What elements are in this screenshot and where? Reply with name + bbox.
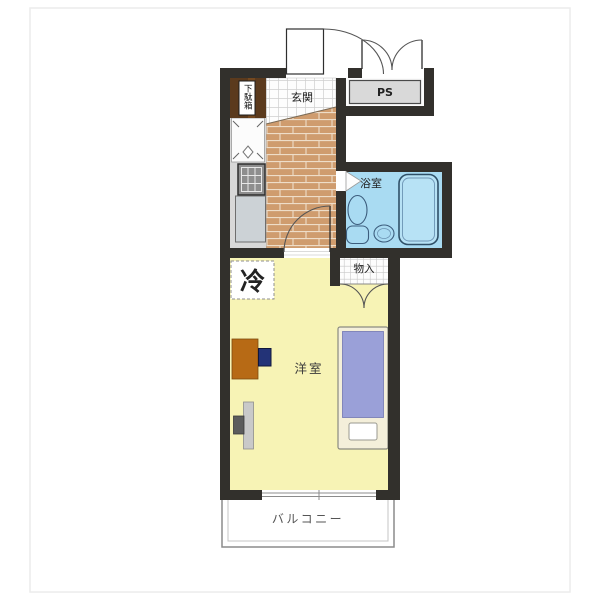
refrigerator-label: 冷 bbox=[240, 267, 265, 296]
pipe-space: PS bbox=[346, 78, 424, 106]
toilet-bowl bbox=[348, 196, 367, 225]
bed bbox=[338, 327, 388, 449]
chair bbox=[259, 349, 272, 367]
entrance-door-arc bbox=[324, 29, 384, 74]
wall-top-middle bbox=[348, 68, 362, 78]
western-room-label: 洋室 bbox=[294, 361, 323, 376]
ps-door-arc-left bbox=[362, 40, 392, 70]
wall-bathroom-top bbox=[336, 162, 452, 172]
shoe-cabinet: 下駄箱 bbox=[230, 78, 266, 118]
wall-ps-right bbox=[424, 68, 434, 116]
toilet-base bbox=[347, 226, 369, 244]
refrigerator-space: 冷 bbox=[231, 261, 274, 299]
bed-mattress bbox=[343, 332, 384, 418]
wall-bottom-left bbox=[220, 490, 262, 500]
bathroom-door-opening bbox=[336, 171, 346, 191]
bathroom: 浴室 bbox=[346, 172, 442, 248]
desk bbox=[232, 339, 258, 379]
bathroom-label: 浴室 bbox=[360, 176, 382, 190]
ps-label: PS bbox=[377, 86, 393, 99]
bathtub bbox=[399, 175, 438, 245]
wall-storage-left bbox=[330, 248, 340, 286]
hallway-brick-floor bbox=[266, 100, 336, 248]
floor-plan-page: バルコニー 洋室 玄関 下駄箱 bbox=[0, 0, 600, 600]
wall-genkan-ps-divider bbox=[336, 78, 346, 172]
shoe-cabinet-label: 下駄箱 bbox=[242, 84, 252, 110]
stove bbox=[238, 164, 265, 195]
wall-room-top bbox=[220, 248, 284, 258]
wall-ps-bottom bbox=[336, 106, 434, 116]
kitchen bbox=[230, 116, 266, 248]
wall-bathroom-left bbox=[336, 191, 346, 248]
wall-bottom-right bbox=[376, 490, 400, 500]
wall-bathroom-right bbox=[442, 162, 452, 258]
ps-doors bbox=[362, 40, 422, 70]
balcony-label: バルコニー bbox=[272, 512, 344, 526]
kitchen-counter bbox=[236, 196, 266, 242]
genkan-label: 玄関 bbox=[291, 90, 313, 104]
wall-left bbox=[220, 68, 230, 500]
entrance-door-leaf bbox=[287, 29, 324, 74]
bed-pillow bbox=[349, 423, 377, 440]
storage-label: 物入 bbox=[354, 262, 375, 275]
wall-room-right bbox=[388, 248, 400, 500]
hallway bbox=[266, 100, 336, 248]
ps-door-arc-right bbox=[392, 40, 422, 70]
floor-plan-canvas: バルコニー 洋室 玄関 下駄箱 bbox=[0, 0, 600, 600]
entrance-door bbox=[287, 29, 384, 74]
tv-board bbox=[244, 402, 254, 449]
balcony-window bbox=[262, 490, 376, 500]
balcony: バルコニー bbox=[222, 499, 394, 547]
room-door-opening bbox=[284, 248, 330, 258]
tv bbox=[234, 416, 245, 434]
wash-stool bbox=[374, 225, 394, 242]
